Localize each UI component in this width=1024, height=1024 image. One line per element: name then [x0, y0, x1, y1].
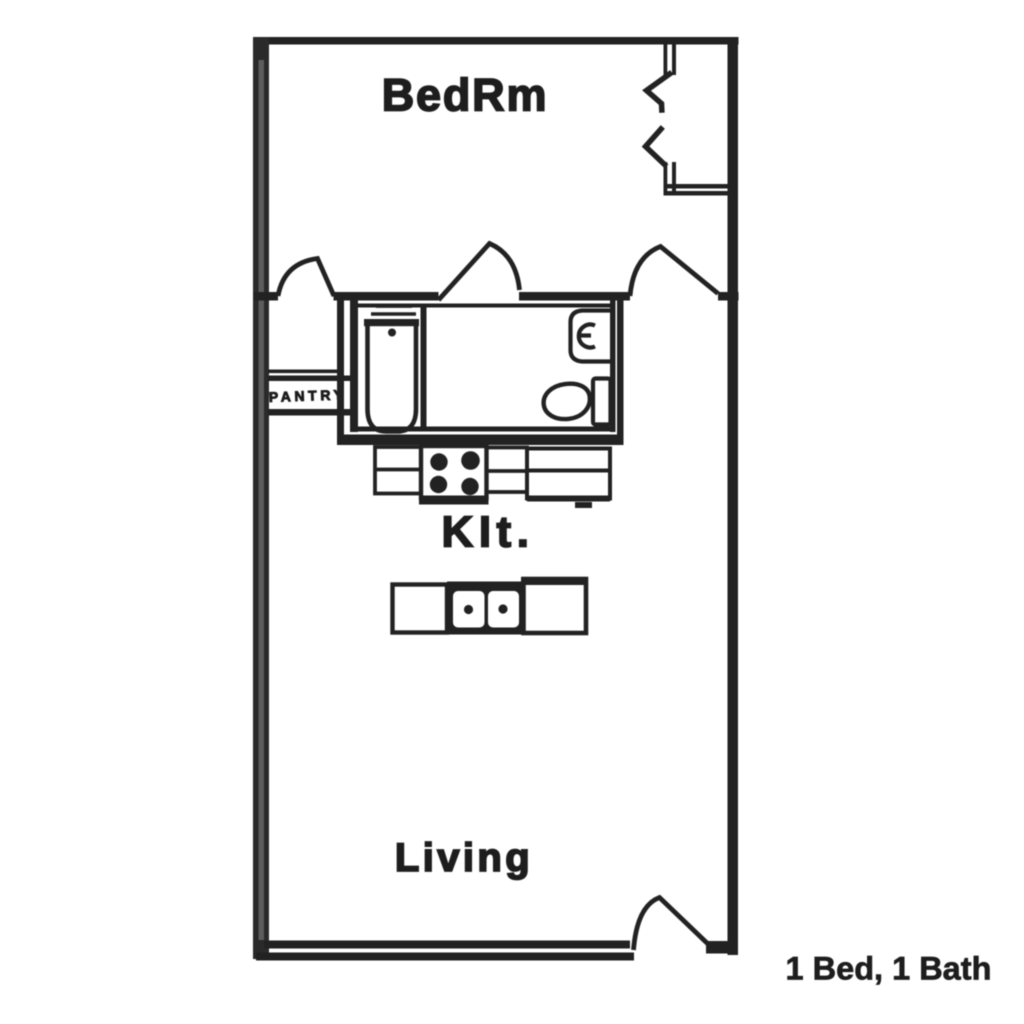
svg-text:1 Bed, 1 Bath: 1 Bed, 1 Bath	[786, 951, 992, 987]
svg-text:KIt.: KIt.	[442, 508, 535, 557]
svg-text:Living: Living	[395, 836, 533, 880]
svg-text:PANTRY: PANTRY	[269, 386, 347, 405]
svg-text:BedRm: BedRm	[382, 70, 549, 121]
